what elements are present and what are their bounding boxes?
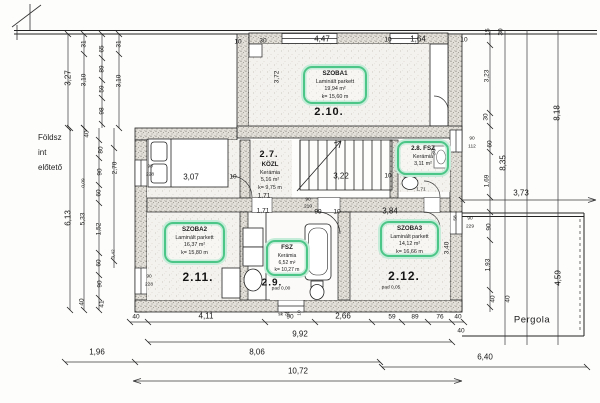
dim-label: 3,40 [444,242,451,255]
dim-label: 90 [97,168,104,175]
dim-label: 3,10 [81,74,88,87]
room-label-line: 6,52 m² [269,260,305,267]
dim-label: 40 [79,298,86,305]
dim-label: 4,47 [314,35,330,44]
room-label-szoba2: SZOBA2 Laminált parkett 16,37 m² k= 15,8… [164,222,225,263]
dim-label: 8,35 [499,155,508,171]
room-number-2-11: 2.11. [182,270,213,284]
dim-label: 40 [457,328,464,335]
room-label-line: k= 9,75 m [245,185,295,193]
room-label-line: Kerámia [400,154,446,162]
dim-label: 40 [132,314,139,321]
room-label-line: 5,16 m² [245,177,295,185]
dim-label: 90 [469,137,474,142]
dim-label: 112 [468,145,476,150]
room-name: 2.8. FSZ [400,145,446,154]
dim-label: 90 [486,223,493,230]
dim-label: 60 [487,140,494,147]
dim-label: 58 [454,215,459,220]
dim-label: 3,10 [116,75,123,88]
dim-label: 6,13 [64,210,73,226]
side-note-line: int [38,145,62,160]
floorplan-linework [0,0,600,403]
floorplan: Földsz int előtető SZOBA1 Laminált parke… [0,0,600,403]
dim-label: 59 [388,314,395,321]
dim-label: 98 [99,107,106,114]
dim-label: 3,23 [484,70,491,83]
room-label-line: k= 16,66 m [383,249,436,257]
room-label-line: k= 15,60 m [306,94,364,102]
room-number-2-9: 2.9. [262,278,283,289]
dim-label: 89 [411,314,418,321]
dim-label: 3,73 [513,189,529,198]
dim-label: 1,52 [96,223,103,236]
dim-label: 228 [145,283,153,288]
dim-label: 229 [466,225,474,230]
dim-label: 5,33 [80,213,87,226]
dim-label: 10 [234,39,241,46]
dim-label: 2,70 [112,162,119,175]
room-label-kozl: KÖZL Kerámia 5,16 m² k= 9,75 m [244,159,296,194]
room-label-szoba3: SZOBA3 Laminált parkett 14,12 m² k= 16,6… [380,221,439,257]
dim-label: 40 [490,295,497,302]
dim-label: 60 [96,189,103,196]
dim-label: 3,22 [333,172,349,181]
dim-label: 10 [384,37,391,44]
dim-label: 8,18 [553,105,562,121]
dim-label: 89 [99,65,106,72]
dim-label: 10 [333,209,340,216]
dim-label: 1,71 [416,188,425,193]
room-label-line: Kerámia [245,170,295,178]
room-name: SZOBA2 [167,226,222,235]
dim-label: 10 [460,37,467,44]
room-name: KÖZL [245,161,295,170]
dim-label: 99 [314,209,321,216]
dim-label: 228 [146,173,154,178]
dim-label: 90 [305,198,310,203]
room-label-fsz-2-8: 2.8. FSZ Kerámia 3,11 m² [397,141,449,175]
side-note: Földsz int előtető [38,130,62,176]
dim-label: 80 [98,146,105,153]
room-label-line: 16,37 m² [167,242,222,250]
room-label-szoba1: SZOBA1 Laminált parkett 19,94 m² k= 15,6… [303,66,367,104]
dim-label: 30 [498,28,505,35]
room-label-line: k= 15,80 m [167,250,222,258]
dim-label: 40 [505,295,512,302]
room-label-line: Laminált parkett [383,234,436,242]
dim-label: 10,72 [288,367,308,376]
dim-label: 210 [304,205,312,210]
dim-label: 6,40 [477,353,493,362]
dim-label: 76 [436,314,443,321]
dim-label: 90 [146,275,151,280]
dim-label: 1,64 [410,35,426,44]
dim-label: 10 [384,173,391,180]
dim-label: 3,84 [382,207,398,216]
room-number-2-10: 2.10. [314,106,343,118]
dim-label: 90 [467,217,472,222]
dim-label: 31 [116,40,123,47]
dim-label: 10 [298,310,303,315]
dim-label: 40 [84,130,91,137]
room-label-fsz-2-9: FSZ Kerámia 6,52 m² k= 10,27 m [266,240,308,276]
dim-label: 1,93 [485,259,492,272]
dim-label: 40 [454,314,461,321]
room-label-line: Laminált parkett [167,235,222,243]
dim-label: 65 [99,45,106,52]
room-number-2-12: 2.12. [388,269,420,283]
dim-label: 90 [97,280,104,287]
dim-label: 3,07 [183,173,199,182]
dim-label: 1,69 [484,175,491,188]
room-label-line: Laminált parkett [306,79,364,87]
room-label-line: Kerámia [269,253,305,260]
dim-label: 4,11 [199,312,214,321]
dim-label: 10 [229,174,236,181]
room-label-line: 19,94 m² [306,86,364,94]
room-label-line: k= 10,27 m [269,267,305,274]
dim-label: 60 [96,259,103,266]
dim-label: 59 [99,85,106,92]
room-label-line: 3,11 m² [400,161,446,169]
dim-label: 30 [259,38,266,45]
dim-label: 8,06 [249,348,265,357]
dim-label: 2,66 [335,312,351,321]
dim-label: 9,92 [292,330,308,339]
room-label-line: 14,12 m² [383,241,436,249]
room-name: FSZ [269,244,305,253]
dim-label: 1,71 [257,208,270,215]
room-number-2-7: 2.7. [259,149,278,159]
dim-label: 30 [483,113,490,120]
dim-label: 41 [99,300,106,307]
dim-label: 3,72 [274,71,281,84]
dim-label: 90 [147,165,152,170]
room-name: SZOBA1 [306,70,364,79]
side-note-line: Földsz [38,130,62,145]
dim-label: 15 [485,28,492,35]
dim-label: 3,42 [112,249,117,258]
dim-label: pad 0,05 [382,286,401,291]
dim-label: 3,27 [64,70,73,86]
dim-label: 31 [81,40,88,47]
pergola-label: Pergola [514,315,550,326]
dim-label: 0,09 [82,178,87,187]
dim-label: 1,96 [89,348,105,357]
dim-label: 90 [286,314,293,321]
side-note-line: előtető [38,160,62,175]
room-name: SZOBA3 [383,225,436,234]
dim-label: 4,59 [554,270,563,286]
